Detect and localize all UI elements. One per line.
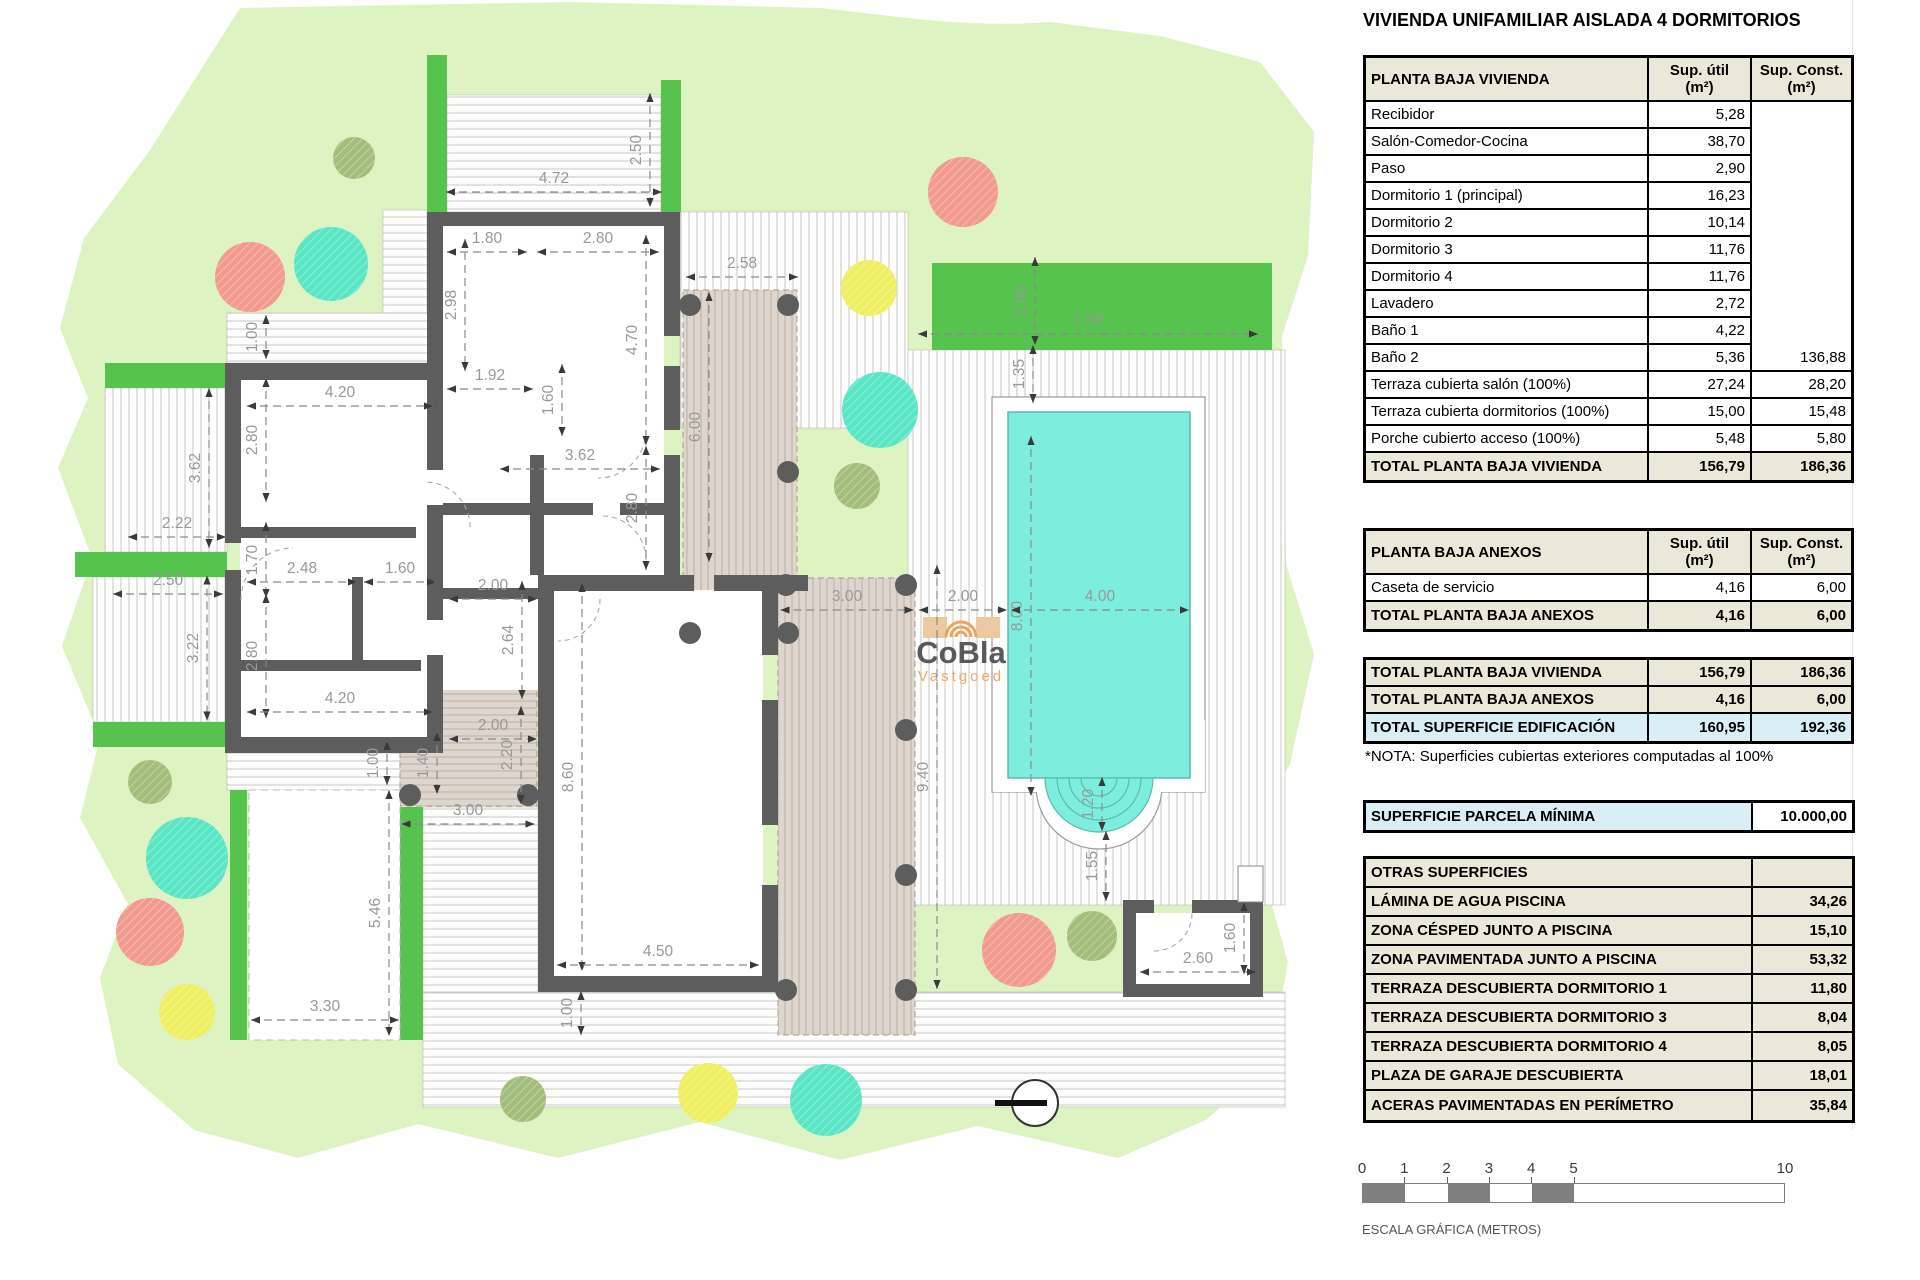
scale-tick-label: 1 xyxy=(1391,1160,1417,1177)
dimension-text: 2.00 xyxy=(1013,286,1030,317)
row-value: 35,84 xyxy=(1751,1091,1852,1120)
table-planta-baja-anexos: PLANTA BAJA ANEXOSSup. útil (m²)Sup. Con… xyxy=(1363,528,1854,632)
table-row: Paso2,90 xyxy=(1366,156,1851,183)
value-sup-util: 15,00 xyxy=(1647,399,1750,426)
dimension-text: 2.00 xyxy=(948,588,979,605)
row-label: Recibidor xyxy=(1366,102,1647,129)
value-sup-const xyxy=(1750,237,1851,264)
dimension-text: 1.55 xyxy=(1084,851,1101,881)
value-sup-const: 136,88 xyxy=(1750,345,1851,372)
value-sup-util: 160,95 xyxy=(1647,714,1750,741)
dimension-text: 2.58 xyxy=(727,255,757,272)
floor-plan: CoBla Vastgoed 2.504.721.802.802.582.984… xyxy=(0,0,1360,1280)
row-label: Salón-Comedor-Cocina xyxy=(1366,129,1647,156)
dimension-text: 3.22 xyxy=(185,633,202,663)
table-row: TOTAL PLANTA BAJA VIVIENDA156,79186,36 xyxy=(1366,660,1851,687)
row-label: TERRAZA DESCUBIERTA DORMITORIO 4 xyxy=(1366,1033,1751,1062)
dimension-text: 1.20 xyxy=(1080,789,1097,820)
table-row: Salón-Comedor-Cocina38,70 xyxy=(1366,129,1851,156)
scale-bar-segment xyxy=(1532,1184,1574,1202)
table-row: Baño 25,36136,88 xyxy=(1366,345,1851,372)
value-sup-const xyxy=(1750,291,1851,318)
tree-hatch xyxy=(790,1064,862,1136)
dimension-text: 1.92 xyxy=(475,367,505,384)
row-value: 18,01 xyxy=(1751,1062,1852,1091)
tree-hatch xyxy=(834,463,880,509)
table-row: TOTAL SUPERFICIE EDIFICACIÓN160,95192,36 xyxy=(1366,714,1851,741)
row-label: Dormitorio 2 xyxy=(1366,210,1647,237)
dimension-text: 2.20 xyxy=(499,740,516,771)
row-value: 34,26 xyxy=(1751,888,1852,917)
value-sup-util: 16,23 xyxy=(1647,183,1750,210)
scale-bar-segment xyxy=(1448,1184,1490,1202)
scale-tick-label: 10 xyxy=(1772,1160,1798,1177)
row-label: Terraza cubierta salón (100%) xyxy=(1366,372,1647,399)
table-row: Dormitorio 1 (principal)16,23 xyxy=(1366,183,1851,210)
scale-tick-mark xyxy=(1489,1177,1490,1183)
dimension-text: 2.48 xyxy=(287,560,317,577)
dimension-text: 7.55 xyxy=(1073,312,1103,329)
column-header-value xyxy=(1751,859,1852,888)
row-label: ZONA PAVIMENTADA JUNTO A PISCINA xyxy=(1366,946,1751,975)
value-sup-util: 11,76 xyxy=(1647,237,1750,264)
scale-tick-mark xyxy=(1574,1177,1575,1183)
table-row: TOTAL PLANTA BAJA ANEXOS4,166,00 xyxy=(1366,687,1851,714)
value-sup-util: 11,76 xyxy=(1647,264,1750,291)
dimension-text: 2.00 xyxy=(478,577,509,594)
table-planta-baja-vivienda: PLANTA BAJA VIVIENDASup. útil (m²)Sup. C… xyxy=(1363,55,1854,483)
table-resumen-totales: TOTAL PLANTA BAJA VIVIENDA156,79186,36TO… xyxy=(1363,657,1854,744)
scale-tick-label: 5 xyxy=(1561,1160,1587,1177)
table-row: ZONA PAVIMENTADA JUNTO A PISCINA53,32 xyxy=(1366,946,1852,975)
dimension-text: 3.00 xyxy=(453,802,484,819)
dimension-text: 2.64 xyxy=(500,625,517,656)
column-header-sup-util: Sup. útil (m²) xyxy=(1647,58,1750,102)
dimension-text: 4.70 xyxy=(624,325,641,356)
scale-tick-mark xyxy=(1531,1177,1532,1183)
value-sup-const: 192,36 xyxy=(1750,714,1851,741)
table-row: PLAZA DE GARAJE DESCUBIERTA18,01 xyxy=(1366,1062,1852,1091)
dimension-text: 2.22 xyxy=(162,515,192,532)
table-row: ACERAS PAVIMENTADAS EN PERÍMETRO35,84 xyxy=(1366,1091,1852,1120)
dimension-text: 2.00 xyxy=(478,717,509,734)
tree-hatch xyxy=(928,157,998,227)
value-sup-util: 4,16 xyxy=(1647,575,1750,602)
nota-text: *NOTA: Superficies cubiertas exteriores … xyxy=(1365,748,1773,765)
row-label: ZONA CÉSPED JUNTO A PISCINA xyxy=(1366,917,1751,946)
tree-hatch xyxy=(333,137,375,179)
total-sup-const: 186,36 xyxy=(1750,453,1851,480)
value-sup-const xyxy=(1750,102,1851,129)
column-header-sup-const: Sup. Const. (m²) xyxy=(1750,531,1851,575)
row-value: 8,04 xyxy=(1751,1004,1852,1033)
dimension-text: 1.60 xyxy=(540,385,557,416)
value-sup-const: 6,00 xyxy=(1750,575,1851,602)
row-label: TERRAZA DESCUBIERTA DORMITORIO 1 xyxy=(1366,975,1751,1004)
row-label: TOTAL PLANTA BAJA ANEXOS xyxy=(1366,687,1647,714)
value-sup-util: 5,28 xyxy=(1647,102,1750,129)
table-row: TERRAZA DESCUBIERTA DORMITORIO 38,04 xyxy=(1366,1004,1852,1033)
row-value: 11,80 xyxy=(1751,975,1852,1004)
logo-name: CoBla xyxy=(916,635,1006,670)
dimension-text: 2.60 xyxy=(1183,950,1214,967)
total-sup-util: 4,16 xyxy=(1647,602,1750,629)
dimension-text: 5.46 xyxy=(367,898,384,928)
table-row: ZONA CÉSPED JUNTO A PISCINA15,10 xyxy=(1366,917,1852,946)
value-sup-const xyxy=(1750,129,1851,156)
scale-caption: ESCALA GRÁFICA (METROS) xyxy=(1362,1222,1541,1237)
dimension-text: 4.50 xyxy=(643,943,674,960)
tree-hatch xyxy=(116,898,184,966)
row-label: PLAZA DE GARAJE DESCUBIERTA xyxy=(1366,1062,1751,1091)
table-row: Porche cubierto acceso (100%)5,485,80 xyxy=(1366,426,1851,453)
tree-hatch xyxy=(215,242,285,312)
table-otras-superficies: OTRAS SUPERFICIESLÁMINA DE AGUA PISCINA3… xyxy=(1363,856,1855,1123)
value-sup-const xyxy=(1750,156,1851,183)
value-sup-util: 5,48 xyxy=(1647,426,1750,453)
value-sup-util: 4,16 xyxy=(1647,687,1750,714)
page-title: VIVIENDA UNIFAMILIAR AISLADA 4 DORMITORI… xyxy=(1363,10,1852,31)
value-sup-const: 186,36 xyxy=(1750,660,1851,687)
tree-hatch xyxy=(842,372,918,448)
logo: CoBla Vastgoed xyxy=(916,617,1006,685)
value-sup-const: 5,80 xyxy=(1750,426,1851,453)
table-header-row: PLANTA BAJA VIVIENDASup. útil (m²)Sup. C… xyxy=(1366,58,1851,102)
tree-hatch xyxy=(678,1063,738,1123)
dimension-text: 3.62 xyxy=(565,447,595,464)
row-label: Dormitorio 3 xyxy=(1366,237,1647,264)
table-row: Dormitorio 210,14 xyxy=(1366,210,1851,237)
dimension-text: 2.80 xyxy=(583,230,614,247)
table-header-label: PLANTA BAJA ANEXOS xyxy=(1366,531,1647,575)
value-sup-util: 156,79 xyxy=(1647,660,1750,687)
dimension-text: 4.20 xyxy=(325,384,356,401)
value-sup-util: 2,90 xyxy=(1647,156,1750,183)
table-row: Dormitorio 311,76 xyxy=(1366,237,1851,264)
value-sup-const xyxy=(1750,183,1851,210)
table-row: Lavadero2,72 xyxy=(1366,291,1851,318)
value-sup-const xyxy=(1750,264,1851,291)
table-parcela-minima: SUPERFICIE PARCELA MÍNIMA 10.000,00 xyxy=(1363,800,1855,833)
dimension-text: 2.50 xyxy=(153,572,184,589)
dimension-text: 1.60 xyxy=(385,560,416,577)
dimension-text: 4.72 xyxy=(539,170,569,187)
scale-bar-segment xyxy=(1363,1184,1405,1202)
table-row: Terraza cubierta salón (100%)27,2428,20 xyxy=(1366,372,1851,399)
scale-tick-label: 2 xyxy=(1434,1160,1460,1177)
row-value: 53,32 xyxy=(1751,946,1852,975)
caseta-notch xyxy=(1238,866,1263,902)
value-sup-const: 15,48 xyxy=(1750,399,1851,426)
dimension-text: 4.20 xyxy=(325,690,356,707)
dimension-text: 1.35 xyxy=(1011,359,1028,389)
dimension-text: 4.00 xyxy=(1085,588,1116,605)
dimension-text: 3.62 xyxy=(187,453,204,483)
row-label: Dormitorio 4 xyxy=(1366,264,1647,291)
value-sup-util: 38,70 xyxy=(1647,129,1750,156)
tree-hatch xyxy=(159,984,215,1040)
dimension-text: 3.30 xyxy=(310,998,341,1015)
dimension-text: 3.00 xyxy=(832,588,863,605)
dimension-text: 1.40 xyxy=(415,748,432,779)
row-label: Paso xyxy=(1366,156,1647,183)
row-label: Terraza cubierta dormitorios (100%) xyxy=(1366,399,1647,426)
value-sup-const xyxy=(1750,318,1851,345)
scale-tick-label: 4 xyxy=(1518,1160,1544,1177)
value-sup-util: 2,72 xyxy=(1647,291,1750,318)
value-sup-const xyxy=(1750,210,1851,237)
tree-hatch xyxy=(1067,911,1117,961)
table-row: TERRAZA DESCUBIERTA DORMITORIO 48,05 xyxy=(1366,1033,1852,1062)
tree-hatch xyxy=(146,817,228,899)
parcela-label: SUPERFICIE PARCELA MÍNIMA xyxy=(1366,803,1751,830)
table-row: Terraza cubierta dormitorios (100%)15,00… xyxy=(1366,399,1851,426)
dimension-text: 1.60 xyxy=(1222,923,1239,954)
column-header-sup-const: Sup. Const. (m²) xyxy=(1750,58,1851,102)
table-row: LÁMINA DE AGUA PISCINA34,26 xyxy=(1366,888,1852,917)
table-header-label: OTRAS SUPERFICIES xyxy=(1366,859,1751,888)
table-row: Dormitorio 411,76 xyxy=(1366,264,1851,291)
row-label: Porche cubierto acceso (100%) xyxy=(1366,426,1647,453)
dimension-text: 1.00 xyxy=(559,998,576,1029)
column-header-sup-util: Sup. útil (m²) xyxy=(1647,531,1750,575)
table-row: TERRAZA DESCUBIERTA DORMITORIO 111,80 xyxy=(1366,975,1852,1004)
table-row: Caseta de servicio4,166,00 xyxy=(1366,575,1851,602)
dimension-text: 1.00 xyxy=(365,748,382,779)
table-header-row: OTRAS SUPERFICIES xyxy=(1366,859,1852,888)
tree-hatch xyxy=(982,913,1056,987)
dimension-text: 6.00 xyxy=(687,412,704,443)
dimension-text: 8.60 xyxy=(560,762,577,793)
dimension-text: 2.80 xyxy=(244,425,261,456)
row-value: 8,05 xyxy=(1751,1033,1852,1062)
parcela-value: 10.000,00 xyxy=(1751,803,1852,830)
value-sup-util: 5,36 xyxy=(1647,345,1750,372)
total-label: TOTAL PLANTA BAJA ANEXOS xyxy=(1366,602,1647,629)
dimension-text: 1.00 xyxy=(244,322,261,353)
page: CoBla Vastgoed 2.504.721.802.802.582.984… xyxy=(0,0,1920,1280)
value-sup-util: 4,22 xyxy=(1647,318,1750,345)
value-sup-util: 10,14 xyxy=(1647,210,1750,237)
row-label: ACERAS PAVIMENTADAS EN PERÍMETRO xyxy=(1366,1091,1751,1120)
logo-subtitle: Vastgoed xyxy=(918,668,1004,685)
tree-hatch xyxy=(128,760,172,804)
row-label: TERRAZA DESCUBIERTA DORMITORIO 3 xyxy=(1366,1004,1751,1033)
table-total-row: TOTAL PLANTA BAJA ANEXOS4,166,00 xyxy=(1366,602,1851,629)
row-label: Baño 2 xyxy=(1366,345,1647,372)
table-total-row: TOTAL PLANTA BAJA VIVIENDA156,79186,36 xyxy=(1366,453,1851,480)
tree-hatch xyxy=(500,1076,546,1122)
dimension-text: 9.40 xyxy=(915,762,932,793)
dimension-text: 2.50 xyxy=(628,135,645,166)
row-value: 15,10 xyxy=(1751,917,1852,946)
row-label: Caseta de servicio xyxy=(1366,575,1647,602)
value-sup-const: 28,20 xyxy=(1750,372,1851,399)
table-row: Recibidor5,28 xyxy=(1366,102,1851,129)
row-label: Lavadero xyxy=(1366,291,1647,318)
row-label: TOTAL SUPERFICIE EDIFICACIÓN xyxy=(1366,714,1647,741)
row-label: Baño 1 xyxy=(1366,318,1647,345)
value-sup-const: 6,00 xyxy=(1750,687,1851,714)
value-sup-util: 27,24 xyxy=(1647,372,1750,399)
table-header-label: PLANTA BAJA VIVIENDA xyxy=(1366,58,1647,102)
dimension-text: 8.00 xyxy=(1009,601,1026,632)
tree-hatch xyxy=(294,227,368,301)
table-row: SUPERFICIE PARCELA MÍNIMA 10.000,00 xyxy=(1366,803,1852,830)
dimension-text: 1.70 xyxy=(244,545,261,576)
table-header-row: PLANTA BAJA ANEXOSSup. útil (m²)Sup. Con… xyxy=(1366,531,1851,575)
total-label: TOTAL PLANTA BAJA VIVIENDA xyxy=(1366,453,1647,480)
scale-tick-label: 3 xyxy=(1476,1160,1502,1177)
scale-tick-mark xyxy=(1404,1177,1405,1183)
row-label: TOTAL PLANTA BAJA VIVIENDA xyxy=(1366,660,1647,687)
dimension-text: 1.80 xyxy=(472,230,503,247)
table-row: Baño 14,22 xyxy=(1366,318,1851,345)
scale-bar-track xyxy=(1362,1183,1785,1203)
total-sup-const: 6,00 xyxy=(1750,602,1851,629)
total-sup-util: 156,79 xyxy=(1647,453,1750,480)
dimension-text: 2.98 xyxy=(443,290,460,320)
scale-tick-label: 0 xyxy=(1349,1160,1375,1177)
row-label: LÁMINA DE AGUA PISCINA xyxy=(1366,888,1751,917)
dimension-text: 2.80 xyxy=(624,493,641,524)
row-label: Dormitorio 1 (principal) xyxy=(1366,183,1647,210)
dimension-text: 2.80 xyxy=(244,641,261,672)
tree-hatch xyxy=(841,260,897,316)
scale-tick-mark xyxy=(1447,1177,1448,1183)
